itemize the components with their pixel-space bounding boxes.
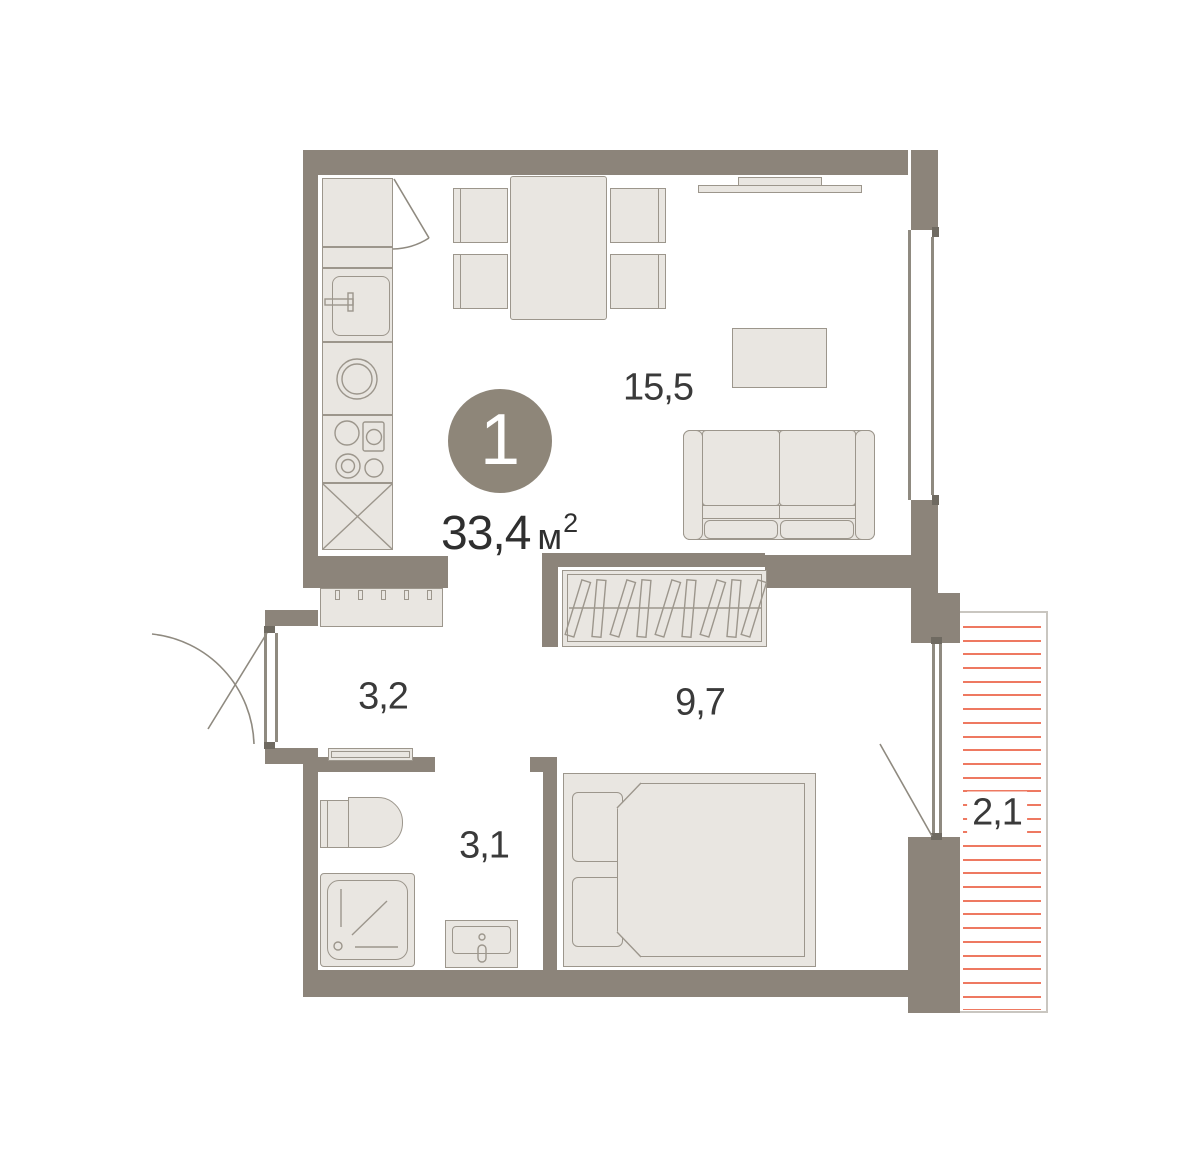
dining-chair-bottom-left (453, 254, 508, 309)
wall-living-bedroom (765, 555, 911, 588)
shower-tray-inner (327, 880, 408, 960)
balcony-door-line-left (932, 644, 935, 833)
wall-right-lower-block (908, 837, 960, 1013)
chair-backrest (454, 189, 461, 242)
sofa-armrest-right (855, 430, 875, 540)
sofa-back-strip-right (779, 505, 856, 519)
wardrobe (562, 570, 767, 647)
entry-door-jamb-left (264, 633, 267, 742)
coat-hook (335, 590, 340, 600)
floor-plan: 1 33,4м2 15,5 3,2 9,7 3,1 2,1 (0, 0, 1200, 1164)
wall-bathroom-bedroom (543, 772, 557, 970)
entrance-door-swing (152, 633, 267, 744)
doormat-inner (331, 751, 410, 758)
sofa-cushion-right (779, 430, 856, 506)
wall-wardrobe-top (558, 553, 765, 567)
wall-hall-living (303, 556, 448, 588)
chair-backrest (658, 255, 665, 308)
dining-chair-bottom-right (610, 254, 666, 309)
fridge-door-swing (393, 179, 429, 249)
room-label-hallway: 3,2 (358, 676, 408, 719)
tv-screen (698, 185, 862, 193)
balcony-door-leaf (880, 744, 932, 836)
area-unit: м (537, 516, 561, 557)
wall-entry-stub-top (265, 610, 318, 626)
bed-blanket (617, 783, 805, 957)
entry-door-cap-top (264, 626, 275, 633)
area-superscript: 2 (563, 508, 577, 538)
wall-wardrobe-pier (542, 553, 558, 647)
bed-pillow-bottom (572, 877, 623, 947)
apartment-number-badge: 1 (448, 389, 552, 493)
sofa-seat-right (780, 520, 854, 539)
coat-hook (381, 590, 386, 600)
coffee-table (732, 328, 827, 388)
kitchen-fridge (322, 178, 393, 247)
toilet-bowl (348, 797, 403, 848)
wall-left-upper (303, 150, 318, 588)
room-label-bedroom: 9,7 (675, 682, 725, 725)
room-label-bathroom: 3,1 (459, 825, 509, 868)
wall-right-mid (911, 500, 938, 643)
room-label-balcony: 2,1 (967, 792, 1027, 835)
wall-top-right (911, 150, 938, 175)
kitchen-sink-basin (332, 276, 390, 336)
balcony-door-line-right (939, 644, 942, 833)
chair-backrest (454, 255, 461, 308)
wall-right-upper (911, 175, 938, 230)
wall-left-lower (303, 748, 318, 997)
sofa-armrest-left (683, 430, 703, 540)
toilet-tank-line (327, 801, 328, 847)
living-window-inner-line (908, 230, 911, 500)
kitchen-cooktop (322, 415, 393, 483)
living-window-outer-line (931, 237, 934, 495)
dining-chair-top-right (610, 188, 666, 243)
room-label-living: 15,5 (623, 367, 693, 410)
coat-hook (427, 590, 432, 600)
apartment-number: 1 (480, 400, 520, 480)
kitchen-counter (322, 247, 393, 268)
sofa-cushion-left (702, 430, 780, 506)
kitchen-washing-machine (322, 342, 393, 415)
wall-bottom (303, 970, 911, 997)
entry-door-jamb-right (275, 633, 278, 742)
total-area-label: 33,4м2 (441, 506, 575, 561)
bed-pillow-top (572, 792, 623, 862)
doormat (328, 748, 413, 761)
entry-door-cap-bottom (264, 742, 275, 749)
balcony-door-cap-top (931, 637, 942, 644)
toilet-tank (320, 800, 349, 848)
wall-right-step (938, 593, 960, 643)
coat-hook (404, 590, 409, 600)
sofa-seat-left (704, 520, 778, 539)
living-window-cap-top (932, 227, 939, 237)
wardrobe-inner (567, 574, 762, 642)
balcony-door-cap-bottom (931, 833, 942, 840)
bathroom-sink-basin (452, 926, 511, 954)
kitchen-cabinet-x (322, 483, 393, 550)
chair-backrest (658, 189, 665, 242)
wall-bathroom-bedroom-block (530, 757, 557, 772)
coat-hook (358, 590, 363, 600)
area-value: 33,4 (441, 507, 530, 560)
living-window-cap-bottom (932, 495, 939, 505)
dining-table (510, 176, 607, 320)
wall-top-left (303, 150, 908, 175)
dining-chair-top-left (453, 188, 508, 243)
sofa-back-strip-left (702, 505, 780, 519)
